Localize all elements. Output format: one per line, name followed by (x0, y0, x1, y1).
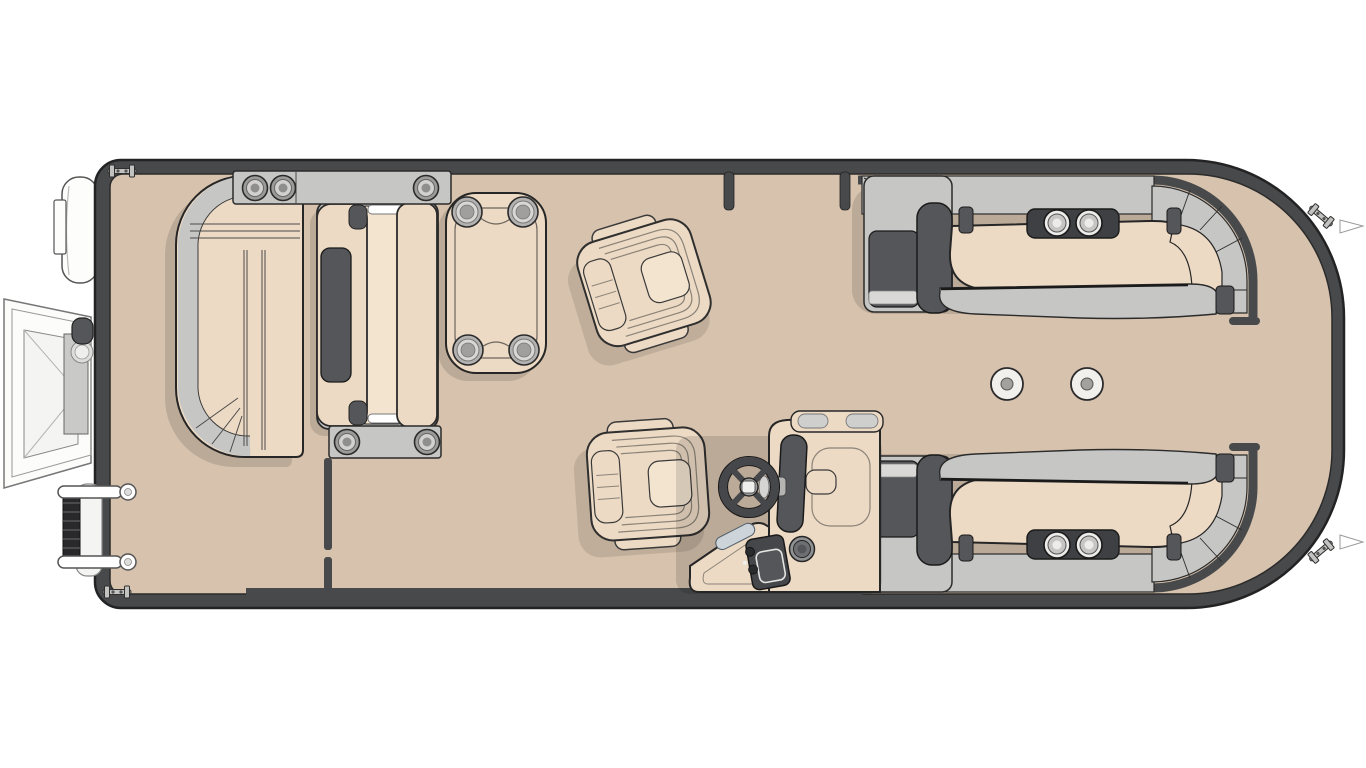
ladder-rung (58, 486, 122, 498)
cup-holder (1076, 210, 1102, 236)
swim-platform (4, 299, 93, 488)
cup-holder (414, 176, 439, 201)
cup-holder (453, 335, 483, 365)
bow-lounge-top (852, 176, 1247, 319)
steering-wheel (719, 457, 780, 518)
dinette-table (438, 193, 546, 381)
outboard-motor (54, 177, 98, 283)
bench-recline-panel (321, 248, 351, 382)
aft-lounge (165, 176, 303, 467)
side-gate-post-right (840, 172, 850, 210)
glovebox (806, 470, 836, 494)
cup-holder-panel (1027, 209, 1119, 238)
cup-holder (335, 430, 360, 455)
bow-lounge-bottom (852, 450, 1247, 593)
cup-holder (509, 335, 539, 365)
floorplan-figure (0, 0, 1366, 768)
helm-cup-holder (790, 537, 815, 562)
pedestal-mount (991, 368, 1023, 400)
pontoon-floorplan (0, 0, 1366, 768)
aft-armrest-bottom (329, 426, 441, 458)
aft-bench (310, 201, 438, 436)
platform-knob (72, 318, 93, 344)
cup-holder (271, 176, 296, 201)
cup-holder (508, 197, 538, 227)
ladder-rung (58, 556, 122, 568)
side-gate-post-left (724, 172, 734, 210)
cup-holder (415, 430, 440, 455)
cup-holder (243, 176, 268, 201)
stern-gate-divider (324, 458, 332, 550)
aft-armrest-top (233, 171, 451, 204)
floorplan-stage (0, 0, 1366, 768)
cup-holder (452, 197, 482, 227)
pedestal-mount (1071, 368, 1103, 400)
cup-holder (1044, 210, 1070, 236)
helm-console (676, 411, 883, 594)
